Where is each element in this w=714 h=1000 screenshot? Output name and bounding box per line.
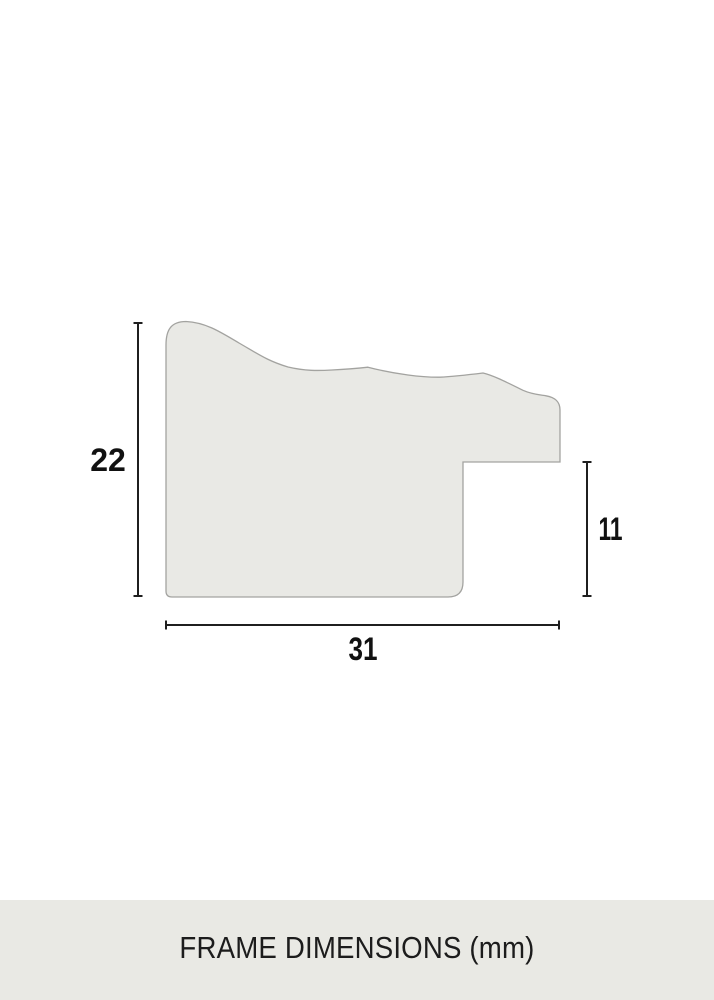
svg-text:31: 31 bbox=[349, 631, 378, 667]
svg-text:22: 22 bbox=[90, 442, 126, 478]
svg-text:11: 11 bbox=[599, 511, 623, 547]
